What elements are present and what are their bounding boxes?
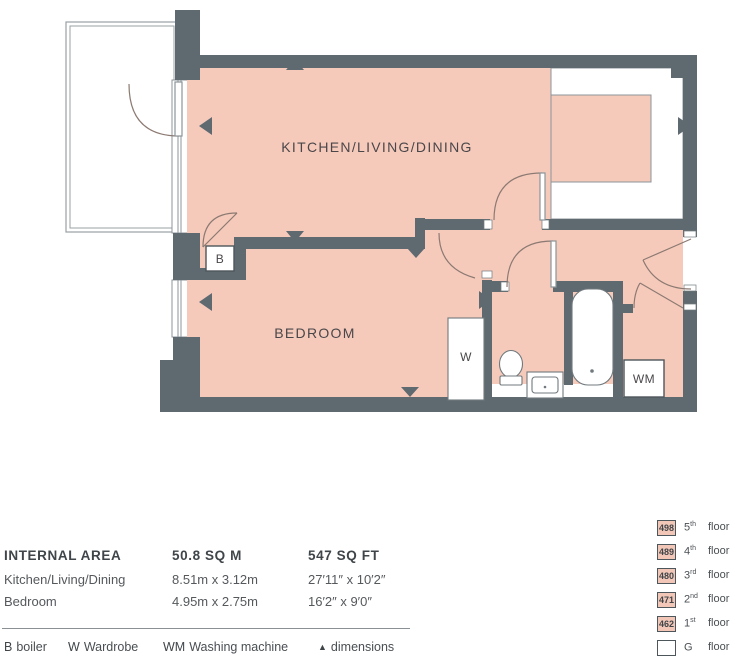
basin: [527, 372, 563, 398]
unit-number-box: 489: [657, 544, 676, 560]
area-table-row-kitchen: Kitchen/Living/Dining 8.51m x 3.12m 27′1…: [4, 572, 454, 592]
floor-key-row-5th: 498 5th floor: [657, 520, 737, 538]
washing-machine-label: WM: [633, 372, 655, 386]
floor-word: floor: [708, 593, 729, 605]
toilet: [500, 351, 523, 386]
area-metric-total: 50.8 SQ M: [172, 548, 242, 563]
row-metric: 4.95m x 2.75m: [172, 594, 258, 609]
legend-label: Wardrobe: [84, 640, 138, 654]
area-table-header: INTERNAL AREA 50.8 SQ M 547 SQ FT: [4, 548, 454, 568]
legend-item-wardrobe: WWardrobe: [68, 640, 138, 654]
row-imperial: 16′2″ x 9′0″: [308, 594, 372, 609]
floor-key-row-4th: 489 4th floor: [657, 544, 737, 562]
room-label-bedroom: BEDROOM: [274, 325, 355, 341]
floor-ordinal: 1st: [684, 617, 696, 630]
legend-item-dimensions: ▲dimensions: [318, 640, 394, 654]
floor-plan: KITCHEN/LIVING/DINING BEDROOM B W WM: [0, 0, 737, 480]
floor-ordinal: 2nd: [684, 593, 698, 606]
floor-ordinal: 3rd: [684, 569, 696, 582]
floor-word: floor: [708, 617, 729, 629]
floor-key-row-2nd: 471 2nd floor: [657, 592, 737, 610]
area-table-row-bedroom: Bedroom 4.95m x 2.75m 16′2″ x 9′0″: [4, 594, 454, 614]
floor-ordinal: 4th: [684, 545, 696, 558]
row-room-name: Bedroom: [4, 594, 57, 609]
unit-number-box: 498: [657, 520, 676, 536]
symbol-legend: Bboiler WWardrobe WMWashing machine ▲dim…: [0, 640, 450, 656]
area-imperial-total: 547 SQ FT: [308, 548, 379, 563]
boiler-label: B: [216, 252, 225, 266]
floor-word: floor: [708, 545, 729, 557]
legend-item-washing-machine: WMWashing machine: [163, 640, 288, 654]
row-imperial: 27′11″ x 10′2″: [308, 572, 385, 587]
legend-label: Washing machine: [189, 640, 288, 654]
floor-key: 498 5th floor 489 4th floor 480 3rd floo…: [657, 520, 737, 657]
floor-key-row-1st: 462 1st floor: [657, 616, 737, 634]
legend-item-boiler: Bboiler: [4, 640, 47, 654]
legend-label: dimensions: [331, 640, 394, 654]
boiler-symbol: B: [4, 640, 12, 654]
floor-plan-svg: KITCHEN/LIVING/DINING BEDROOM B W WM: [0, 0, 737, 480]
balcony: [66, 22, 178, 232]
legend-separator-line: [2, 628, 410, 629]
window-band-lower: [172, 280, 188, 337]
washing-machine-symbol: WM: [163, 640, 185, 654]
area-table-title: INTERNAL AREA: [4, 548, 121, 563]
kitchen-counter: [551, 68, 683, 219]
floor-word: floor: [708, 641, 729, 653]
floor-word: floor: [708, 521, 729, 533]
legend-label: boiler: [16, 640, 47, 654]
floor-key-row-ground: G floor: [657, 640, 737, 658]
unit-number-box: [657, 640, 676, 656]
unit-number-box: 480: [657, 568, 676, 584]
row-room-name: Kitchen/Living/Dining: [4, 572, 125, 587]
room-label-kitchen: KITCHEN/LIVING/DINING: [281, 139, 472, 155]
unit-number-box: 462: [657, 616, 676, 632]
row-metric: 8.51m x 3.12m: [172, 572, 258, 587]
wardrobe-symbol: W: [68, 640, 80, 654]
dimensions-triangle-icon: ▲: [318, 642, 327, 652]
floor-word: floor: [708, 569, 729, 581]
wardrobe-label: W: [460, 350, 472, 364]
floor-ordinal: 5th: [684, 521, 696, 534]
floor-key-row-3rd: 480 3rd floor: [657, 568, 737, 586]
unit-number-box: 471: [657, 592, 676, 608]
area-table: INTERNAL AREA 50.8 SQ M 547 SQ FT Kitche…: [4, 548, 454, 620]
floor-ordinal: G: [684, 641, 693, 654]
bath: [572, 289, 613, 385]
